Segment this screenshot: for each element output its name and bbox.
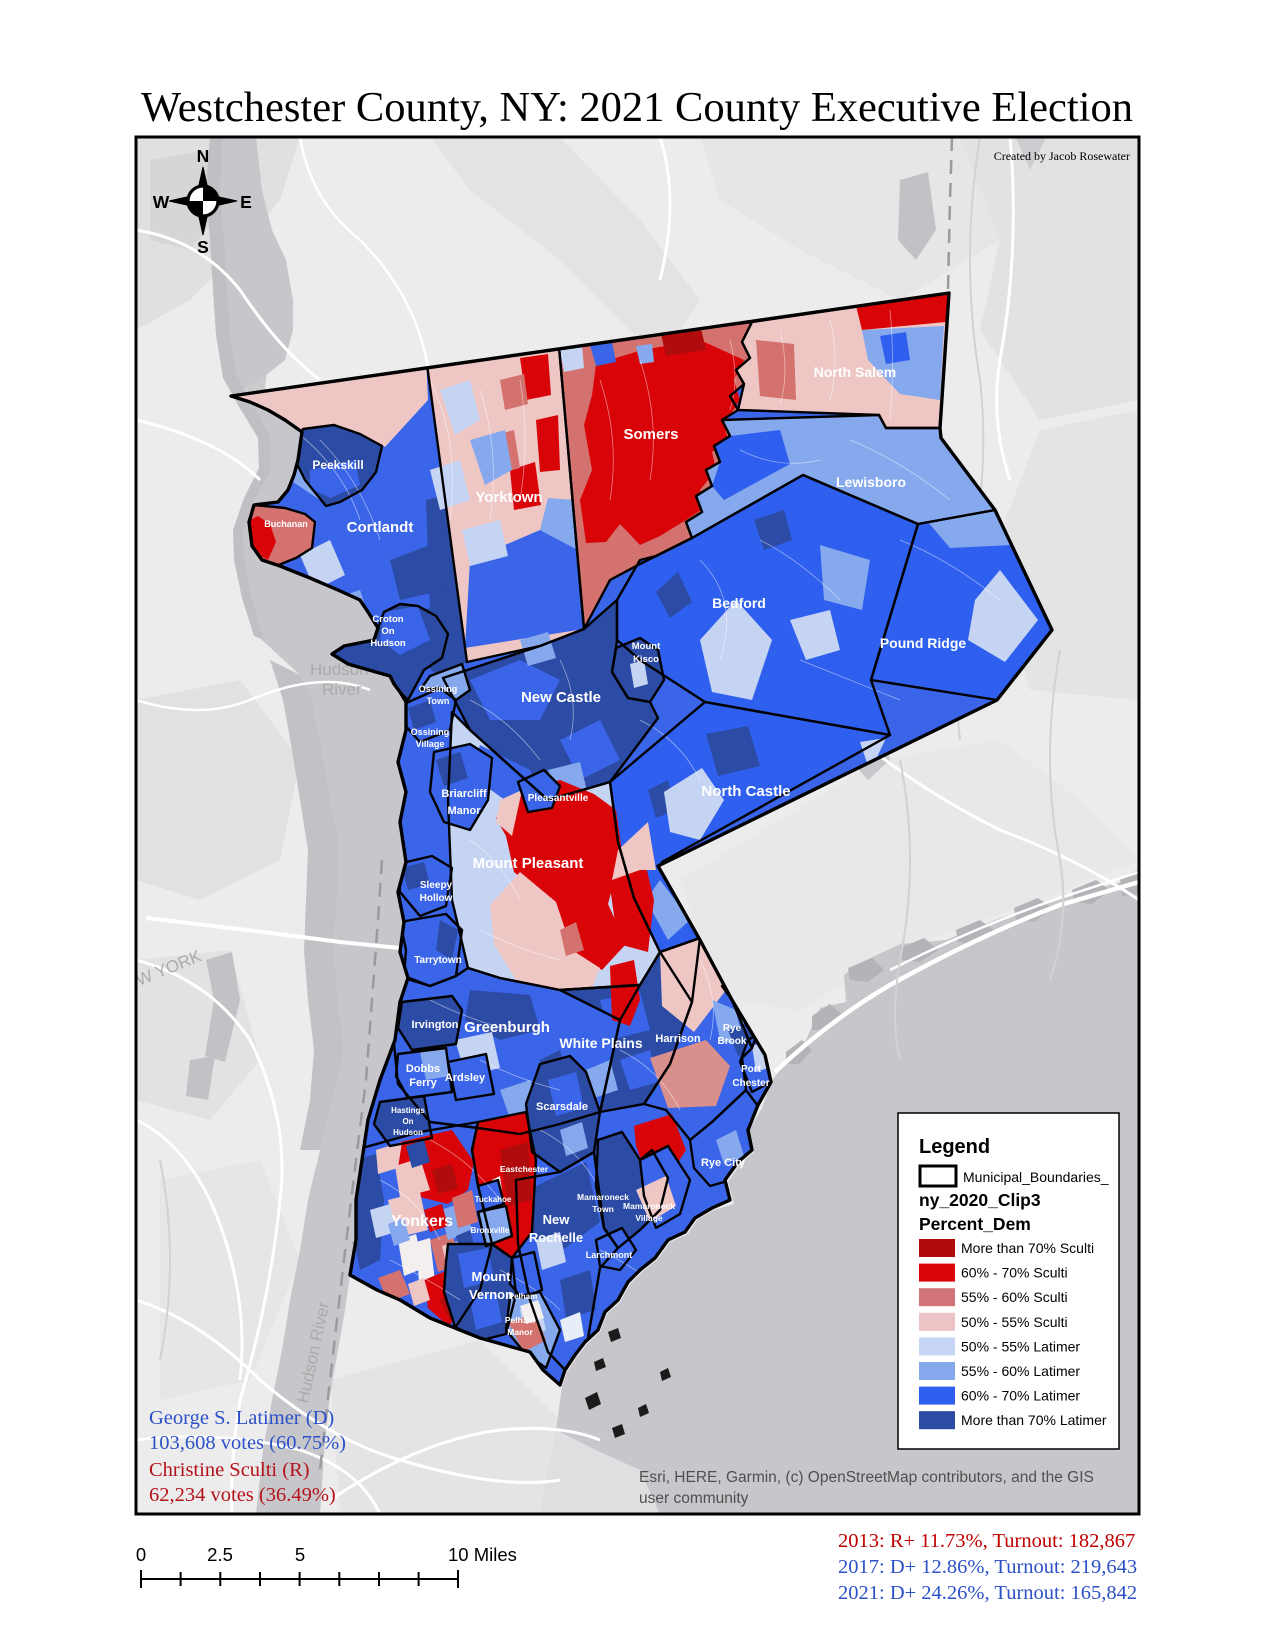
svg-text:Sleepy: Sleepy [420, 880, 453, 891]
svg-text:Pelham: Pelham [505, 1315, 536, 1325]
svg-text:W: W [153, 192, 170, 212]
svg-text:Hastings: Hastings [391, 1106, 425, 1115]
svg-text:Tuckahoe: Tuckahoe [475, 1195, 512, 1204]
svg-text:Chester: Chester [732, 1078, 769, 1089]
svg-text:Cortlandt: Cortlandt [347, 519, 414, 536]
svg-text:Mount: Mount [632, 641, 661, 652]
svg-text:Ossining: Ossining [419, 684, 458, 694]
svg-text:Legend: Legend [919, 1136, 990, 1158]
svg-text:Scarsdale: Scarsdale [536, 1101, 588, 1113]
svg-text:Mount: Mount [472, 1269, 512, 1284]
svg-text:Dobbs: Dobbs [406, 1063, 440, 1075]
svg-text:50% - 55% Sculti: 50% - 55% Sculti [961, 1314, 1068, 1330]
svg-text:River: River [322, 680, 362, 699]
svg-text:103,608 votes (60.75%): 103,608 votes (60.75%) [149, 1432, 346, 1454]
svg-text:Manor: Manor [507, 1327, 533, 1337]
svg-text:Pound Ridge: Pound Ridge [880, 635, 967, 651]
svg-text:New: New [543, 1212, 571, 1227]
svg-text:Irvington: Irvington [411, 1019, 458, 1031]
svg-text:George S. Latimer (D): George S. Latimer (D) [149, 1407, 334, 1429]
svg-text:White Plains: White Plains [559, 1035, 642, 1051]
svg-text:E: E [240, 192, 252, 212]
svg-text:Ferry: Ferry [409, 1077, 437, 1089]
svg-text:Yonkers: Yonkers [391, 1213, 453, 1230]
svg-text:60% - 70% Latimer: 60% - 70% Latimer [961, 1388, 1080, 1404]
svg-text:Yorktown: Yorktown [475, 489, 542, 506]
svg-text:55% - 60% Latimer: 55% - 60% Latimer [961, 1363, 1080, 1379]
svg-text:Briarcliff: Briarcliff [441, 788, 487, 800]
svg-text:Croton: Croton [372, 614, 403, 625]
svg-text:Hollow: Hollow [420, 893, 453, 904]
svg-text:Municipal_Boundaries_: Municipal_Boundaries_ [963, 1169, 1109, 1185]
svg-text:Created by Jacob Rosewater: Created by Jacob Rosewater [994, 149, 1130, 163]
svg-text:2013: R+ 11.73%, Turnout: 182,: 2013: R+ 11.73%, Turnout: 182,867 [838, 1530, 1135, 1552]
svg-text:Westchester County, NY: 2021 C: Westchester County, NY: 2021 County Exec… [141, 84, 1133, 131]
svg-text:5: 5 [295, 1544, 305, 1565]
svg-text:North Salem: North Salem [814, 364, 896, 380]
svg-text:Harrison: Harrison [655, 1033, 701, 1045]
svg-text:Ardsley: Ardsley [445, 1072, 486, 1084]
svg-text:Peekskill: Peekskill [312, 458, 363, 472]
svg-text:Town: Town [427, 696, 450, 706]
svg-text:Vernon: Vernon [469, 1287, 513, 1302]
svg-text:New Castle: New Castle [521, 689, 601, 706]
svg-text:Mamaroneck: Mamaroneck [623, 1201, 675, 1211]
svg-text:ny_2020_Clip3: ny_2020_Clip3 [919, 1190, 1041, 1210]
svg-text:Pelham: Pelham [509, 1292, 537, 1301]
svg-text:Lewisboro: Lewisboro [836, 474, 906, 490]
svg-text:Eastchester: Eastchester [500, 1164, 549, 1174]
svg-text:Christine Sculti (R): Christine Sculti (R) [149, 1459, 310, 1481]
svg-text:Tarrytown: Tarrytown [414, 955, 462, 966]
svg-text:Percent_Dem: Percent_Dem [919, 1214, 1031, 1234]
svg-text:Greenburgh: Greenburgh [464, 1019, 550, 1036]
svg-text:Hudson: Hudson [370, 638, 406, 649]
svg-text:On: On [381, 626, 394, 637]
svg-text:Village: Village [416, 739, 445, 749]
svg-text:10 Miles: 10 Miles [448, 1544, 517, 1565]
svg-text:Hudson: Hudson [393, 1128, 423, 1137]
svg-text:0: 0 [136, 1544, 146, 1565]
svg-text:S: S [197, 237, 209, 257]
svg-text:More than 70% Latimer: More than 70% Latimer [961, 1412, 1107, 1428]
svg-text:Mount Pleasant: Mount Pleasant [473, 855, 584, 872]
svg-text:Pleasantville: Pleasantville [528, 793, 589, 804]
svg-text:Kisco: Kisco [633, 654, 659, 665]
svg-text:Bedford: Bedford [712, 595, 766, 611]
svg-text:Brook: Brook [718, 1036, 747, 1047]
svg-text:Manor: Manor [448, 805, 482, 817]
svg-text:Port: Port [741, 1064, 762, 1075]
svg-text:Village: Village [635, 1213, 663, 1223]
svg-text:Buchanan: Buchanan [264, 519, 308, 529]
svg-text:60% - 70% Sculti: 60% - 70% Sculti [961, 1265, 1068, 1281]
svg-text:Town: Town [592, 1204, 614, 1214]
svg-text:Larchmont: Larchmont [586, 1250, 633, 1260]
svg-text:N: N [197, 146, 210, 166]
svg-text:2017: D+ 12.86%, Turnout: 219,: 2017: D+ 12.86%, Turnout: 219,643 [838, 1556, 1137, 1578]
svg-text:2021: D+ 24.26%, Turnout: 165,: 2021: D+ 24.26%, Turnout: 165,842 [838, 1582, 1137, 1604]
svg-text:North Castle: North Castle [701, 783, 790, 800]
svg-text:55% - 60% Sculti: 55% - 60% Sculti [961, 1289, 1068, 1305]
svg-text:Bronxville: Bronxville [471, 1226, 510, 1235]
svg-text:Rye City: Rye City [701, 1157, 746, 1169]
svg-text:2.5: 2.5 [207, 1544, 233, 1565]
svg-text:user community: user community [639, 1490, 749, 1507]
svg-text:Somers: Somers [623, 426, 678, 443]
svg-text:Rye: Rye [723, 1023, 742, 1034]
svg-text:On: On [402, 1117, 413, 1126]
svg-text:Mamaroneck: Mamaroneck [577, 1192, 629, 1202]
svg-text:More than 70% Sculti: More than 70% Sculti [961, 1240, 1094, 1256]
svg-text:Esri, HERE, Garmin, (c) OpenSt: Esri, HERE, Garmin, (c) OpenStreetMap co… [639, 1469, 1094, 1486]
svg-text:Ossining: Ossining [411, 727, 450, 737]
svg-text:Rochelle: Rochelle [529, 1230, 583, 1245]
svg-text:50% - 55% Latimer: 50% - 55% Latimer [961, 1338, 1080, 1354]
svg-text:62,234 votes (36.49%): 62,234 votes (36.49%) [149, 1484, 336, 1506]
